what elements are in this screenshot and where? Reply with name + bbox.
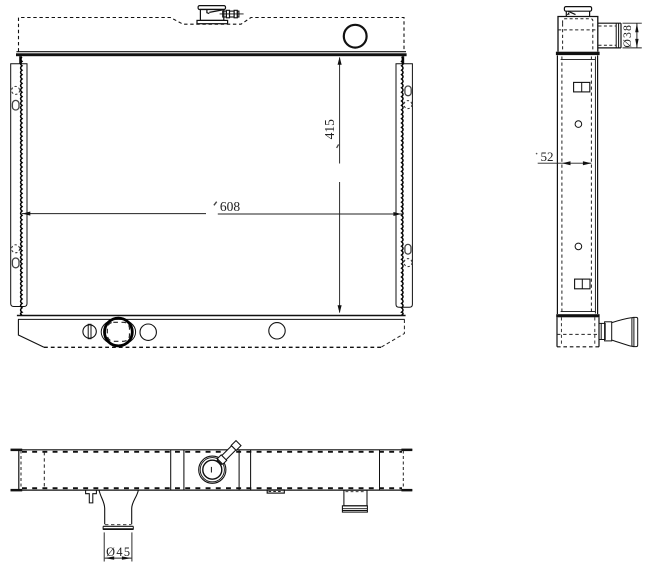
svg-text:608: 608 <box>220 199 241 214</box>
svg-text:52: 52 <box>541 149 554 164</box>
svg-text:415: 415 <box>322 119 337 140</box>
svg-text:Ø45: Ø45 <box>106 545 131 559</box>
svg-text:Ø38: Ø38 <box>620 24 634 48</box>
